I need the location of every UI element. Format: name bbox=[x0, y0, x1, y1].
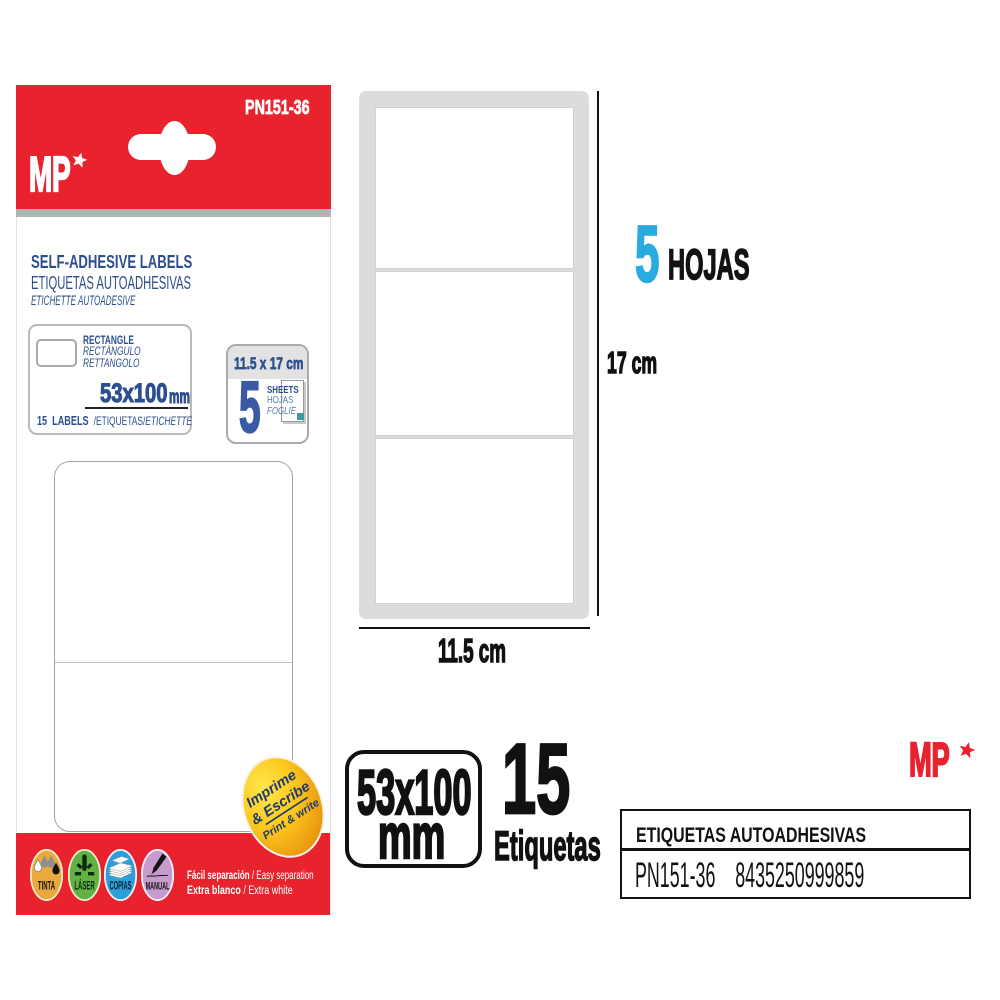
svg-text:TINTA: TINTA bbox=[38, 879, 55, 892]
svg-text:MANUAL: MANUAL bbox=[146, 879, 170, 892]
svg-text:COPIAS: COPIAS bbox=[109, 879, 131, 892]
svg-text:LÁSER: LÁSER bbox=[74, 878, 94, 892]
